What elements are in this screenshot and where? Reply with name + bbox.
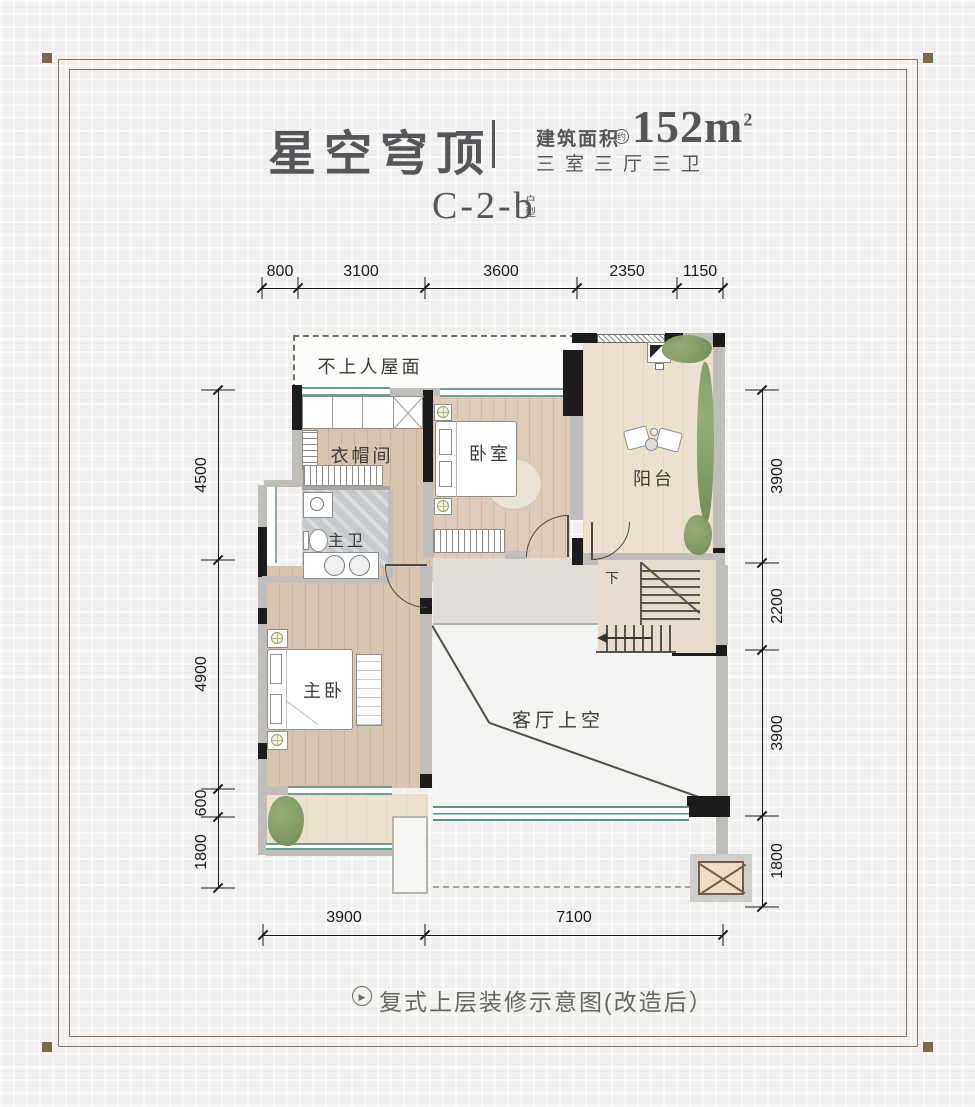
dim-label: 3900 xyxy=(769,715,787,751)
master-bedroom-window xyxy=(288,786,392,795)
area-number: 152m xyxy=(632,101,743,152)
caption-text: 复式上层装修示意图(改造后） xyxy=(379,983,714,1017)
room-label-master-bedroom: 主卧 xyxy=(303,677,345,703)
stair-step xyxy=(660,625,662,651)
wall xyxy=(264,480,302,487)
stair-step xyxy=(642,602,700,604)
plant xyxy=(268,796,304,846)
dim-label: 4900 xyxy=(193,656,211,692)
area-exponent: 2 xyxy=(743,110,753,130)
pillow xyxy=(270,654,282,684)
living-room-window xyxy=(433,806,689,821)
side-table xyxy=(645,438,658,451)
sink-basin xyxy=(324,555,345,576)
void-top-edge xyxy=(433,623,598,625)
pillow xyxy=(439,429,452,455)
lamp-icon xyxy=(271,632,283,644)
plant xyxy=(684,515,712,555)
dim-label: 1800 xyxy=(769,843,787,879)
lamp-icon xyxy=(437,500,449,512)
page-title: 星空穹顶 xyxy=(268,114,492,184)
stair-step xyxy=(642,618,700,620)
room-label-cloakroom: 衣帽间 xyxy=(331,442,394,468)
dim-label: 3100 xyxy=(343,263,379,281)
dim-label: 1800 xyxy=(193,834,211,870)
plant xyxy=(662,335,712,363)
wardrobe xyxy=(433,529,505,553)
stair-bottom-edge xyxy=(596,651,676,653)
area-value: 152m2 xyxy=(632,100,753,153)
wall-column xyxy=(563,350,583,416)
plant xyxy=(697,362,714,522)
wall xyxy=(258,527,267,577)
camera-mount xyxy=(655,363,664,370)
side-table-small xyxy=(650,428,658,436)
dim-label: 4500 xyxy=(193,457,211,493)
lamp-icon xyxy=(437,406,449,418)
frame-corner-square xyxy=(923,53,933,63)
closet-window xyxy=(302,387,390,396)
dim-label: 2350 xyxy=(609,263,645,281)
closet-divider xyxy=(362,396,363,429)
dim-line-bottom xyxy=(263,935,723,936)
dim-label: 3600 xyxy=(483,263,519,281)
wall xyxy=(266,850,392,856)
dim-line-top xyxy=(262,288,723,289)
hanging-rack xyxy=(303,465,383,486)
pillow xyxy=(270,694,282,724)
frame-corner-square xyxy=(42,53,52,63)
frame-corner-square xyxy=(42,1042,52,1052)
wall xyxy=(713,333,725,347)
area-label: 建筑面积 xyxy=(536,124,620,151)
wall xyxy=(266,786,288,795)
stair-arrow-icon xyxy=(597,633,607,643)
area-approx-circle: 约 xyxy=(614,129,629,144)
wall xyxy=(258,608,267,624)
dim-label: 600 xyxy=(193,790,211,817)
stair-step xyxy=(642,594,700,596)
wall xyxy=(423,390,433,482)
pillow xyxy=(439,461,452,487)
wall xyxy=(570,416,583,520)
unit-label-bottom: 型 xyxy=(525,207,536,219)
caption-play-glyph: ▶ xyxy=(359,992,366,1002)
wall xyxy=(423,482,433,558)
stairs-down-label: 下 xyxy=(605,568,619,588)
closet-divider xyxy=(393,396,394,429)
bed-bench xyxy=(356,654,382,726)
dim-label: 7100 xyxy=(556,909,592,927)
stair-step xyxy=(642,610,700,612)
room-label-master-bath: 主卫 xyxy=(328,527,366,551)
bedroom-window xyxy=(440,388,563,397)
lower-floor-dashed-line xyxy=(433,886,691,888)
wall xyxy=(258,743,267,759)
floor-plan-page: 星空穹顶 建筑面积 约 152m2 三室三厅三卫 C-2-b 户 型 xyxy=(0,0,975,1107)
title-divider xyxy=(492,120,495,168)
shower-head-icon xyxy=(310,497,324,511)
hanging-rack xyxy=(302,430,318,470)
dim-label: 1150 xyxy=(683,263,717,281)
camera-lens-icon xyxy=(650,345,663,358)
balcony-door-leaf xyxy=(591,522,593,560)
room-label-balcony: 阳台 xyxy=(633,465,675,491)
dim-label: 3900 xyxy=(769,458,787,494)
wall xyxy=(292,430,302,486)
dim-label: 2200 xyxy=(769,588,787,624)
lamp-icon xyxy=(271,734,283,746)
room-label-bedroom: 卧室 xyxy=(469,440,511,466)
frame-corner-square xyxy=(923,1042,933,1052)
dim-label: 800 xyxy=(267,263,294,281)
wall xyxy=(302,486,390,490)
room-label-roof: 不上人屋面 xyxy=(318,353,423,379)
wall xyxy=(572,538,583,565)
bed-line xyxy=(286,649,287,730)
toilet-bowl xyxy=(309,529,328,552)
unit-label-top: 户 xyxy=(525,195,536,207)
sink-basin xyxy=(349,555,370,576)
wall xyxy=(420,774,432,788)
caption-play-circle-icon: ▶ xyxy=(352,986,372,1006)
wall xyxy=(572,333,597,343)
stair-step xyxy=(669,625,671,651)
dim-label: 3900 xyxy=(326,909,362,927)
spec-line: 三室三厅三卫 xyxy=(536,149,710,176)
room-label-living-void: 客厅上空 xyxy=(512,706,604,733)
master-door-leaf xyxy=(385,564,427,566)
balcony-right-wall xyxy=(713,333,725,565)
wall xyxy=(716,817,728,854)
closet-divider xyxy=(332,396,333,429)
wall xyxy=(687,796,730,817)
unit-label: 户 型 xyxy=(525,195,536,219)
wall xyxy=(292,385,302,430)
right-lower-wall xyxy=(716,656,728,806)
unit-code: C-2-b xyxy=(432,184,536,228)
wall xyxy=(716,565,728,645)
bed-line xyxy=(456,421,457,497)
flue-box xyxy=(392,816,428,894)
stair-step xyxy=(642,578,700,580)
stair-direction-line xyxy=(606,637,652,639)
bedroom-door-leaf xyxy=(567,515,569,557)
wall xyxy=(505,551,527,559)
